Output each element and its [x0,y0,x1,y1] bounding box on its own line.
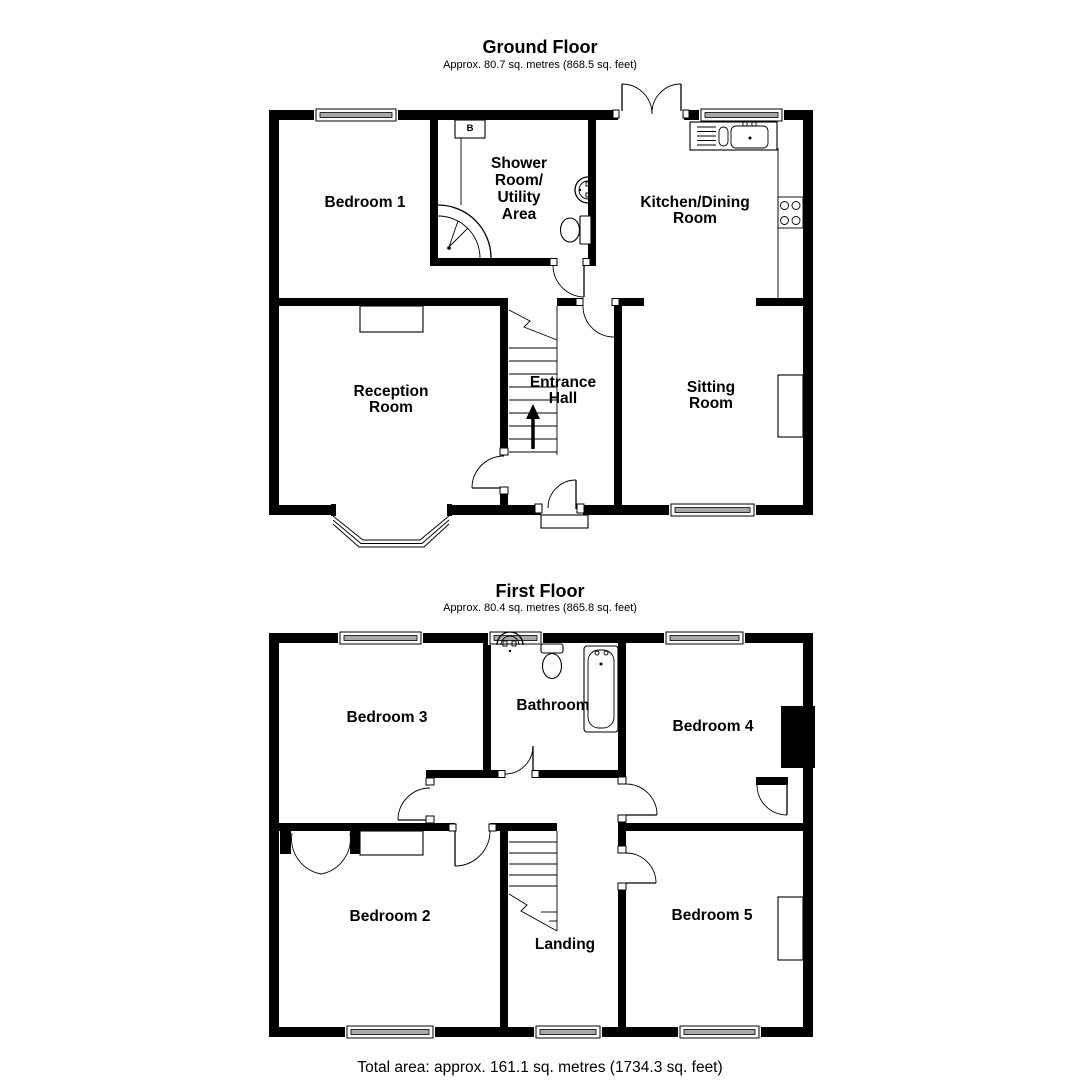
kitchen-window [699,108,784,122]
room-label-bedroom-3: Bedroom 3 [347,710,428,726]
bedroom1-window [314,108,398,122]
room-label-line: Sitting [687,380,735,396]
first-floor-plan [269,631,815,1039]
room-label-kitchen-dining: Kitchen/Dining Room [640,195,749,227]
bedroom4-chimney [781,706,815,768]
room-label-reception: Reception Room [354,384,429,416]
french-doors [613,84,689,122]
front-door [535,480,588,528]
room-label-line: Reception [354,384,429,400]
reception-chimney-breast [360,306,423,332]
kitchen-sink [690,122,777,150]
boiler-label: B [467,121,474,137]
room-label-sitting-room: Sitting Room [687,380,735,412]
floorplan-canvas: Ground Floor Approx. 80.7 sq. metres (86… [0,0,1080,1080]
landing-window [534,1025,602,1039]
bedroom5-recess [778,897,803,960]
sitting-room-recess [778,375,803,437]
room-label-bathroom: Bathroom [516,698,589,714]
total-area-text: Total area: approx. 161.1 sq. metres (17… [357,1060,722,1076]
first-floor-subtitle: Approx. 80.4 sq. metres (865.8 sq. feet) [443,600,637,616]
room-label-bedroom-5: Bedroom 5 [672,908,753,924]
bedroom3-window [338,631,423,645]
room-label-line: Utility [491,189,547,206]
first-floor-title: First Floor [496,583,585,599]
room-label-line: Room [354,400,429,416]
room-label-line: Room [640,211,749,227]
bathroom-toilet [541,644,563,679]
bathroom-bath [584,646,618,732]
room-label-line: Kitchen/Dining [640,195,749,211]
bedroom3-door [398,778,434,823]
bedroom2-door [449,824,496,866]
corner-shower [438,205,491,258]
room-label-line: Shower [491,155,547,172]
bedroom4-cupboard-door [757,785,787,815]
room-label-line: Area [491,206,547,223]
room-label-bedroom-1: Bedroom 1 [325,195,406,211]
room-label-bedroom-4: Bedroom 4 [673,719,754,735]
room-label-entrance-hall: Entrance Hall [530,375,596,407]
bedroom4-door [618,777,657,822]
sitting-room-window [669,503,756,517]
bedroom5-door [618,846,656,890]
room-label-landing: Landing [535,937,595,953]
room-label-shower-room: Shower Room/ Utility Area [491,155,547,223]
bay-window [331,503,452,547]
ground-floor-plan [269,84,813,547]
ground-floor-title: Ground Floor [483,39,598,55]
room-label-line: Room [687,396,735,412]
bedroom2-window [345,1025,435,1039]
bedroom4-window [664,631,745,645]
room-label-bedroom-2: Bedroom 2 [350,909,431,925]
stairs-up-arrow [526,404,540,449]
ground-floor-subtitle: Approx. 80.7 sq. metres (868.5 sq. feet) [443,57,637,73]
reception-door [472,448,508,494]
wardrobe-doors [292,833,351,874]
shower-room-toilet [561,216,592,244]
hall-door [576,299,619,338]
room-label-line: Entrance [530,375,596,391]
bedroom5-window [678,1025,761,1039]
bedroom2-chimney-breast [360,831,423,855]
first-stairs [509,831,557,931]
bathroom-door [498,746,539,778]
room-label-line: Room/ [491,172,547,189]
room-label-line: Hall [530,391,596,407]
shower-room-door [550,259,590,298]
kitchen-counter-hob [778,148,803,298]
